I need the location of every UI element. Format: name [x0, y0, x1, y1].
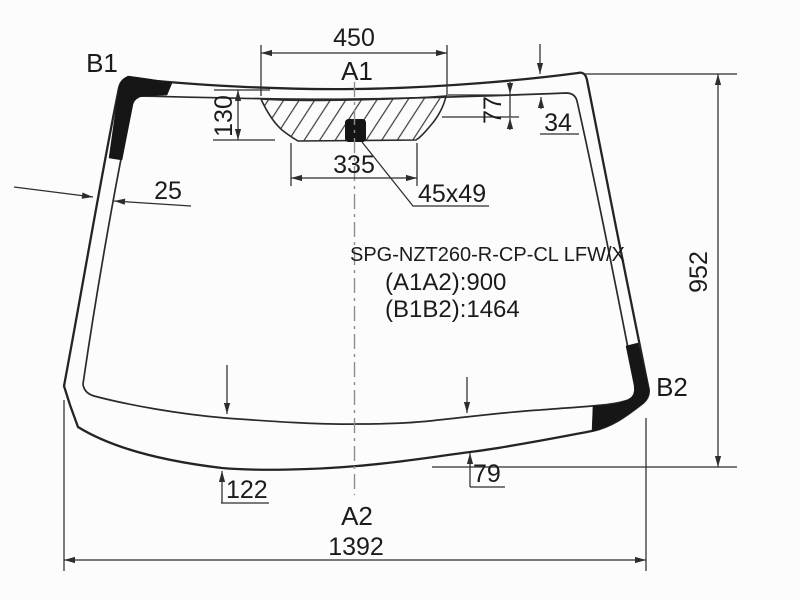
- dim-122-label: 122: [226, 476, 268, 504]
- dim-450-label: 450: [333, 24, 375, 52]
- b1b2-distance-text: (B1B2):1464: [385, 296, 520, 323]
- dim-335-label: 335: [333, 151, 375, 179]
- a1a2-distance-text: (A1A2):900: [385, 269, 506, 296]
- dim-34-label: 34: [544, 109, 572, 137]
- mirror-sensor-block: [345, 119, 366, 142]
- dim-1392-label: 1392: [328, 533, 384, 561]
- part-code-text: SPG-NZT260-R-CP-CL LFW/X: [350, 244, 625, 266]
- a1-label: A1: [341, 56, 373, 86]
- dim-130-label: 130: [210, 95, 238, 137]
- windshield-drawing-canvas: 450 A1 130 335 77 34 25 45x49 952 122 79…: [0, 0, 800, 600]
- dim-77-label: 77: [479, 96, 507, 124]
- dim-25-label: 25: [154, 177, 182, 205]
- a2-label: A2: [341, 501, 373, 531]
- dim-25-arrow-left: [14, 187, 93, 197]
- b2-label: B2: [656, 372, 688, 402]
- windshield-diagram: 450 A1 130 335 77 34 25 45x49 952 122 79…: [0, 0, 800, 600]
- part-info-block: SPG-NZT260-R-CP-CL LFW/X (A1A2):900 (B1B…: [350, 244, 625, 323]
- b2-corner-band: [592, 343, 649, 431]
- dim-79-label: 79: [473, 460, 501, 488]
- b1-label: B1: [86, 48, 118, 78]
- dim-45x49-label: 45x49: [418, 180, 486, 208]
- dim-952-label: 952: [685, 251, 713, 293]
